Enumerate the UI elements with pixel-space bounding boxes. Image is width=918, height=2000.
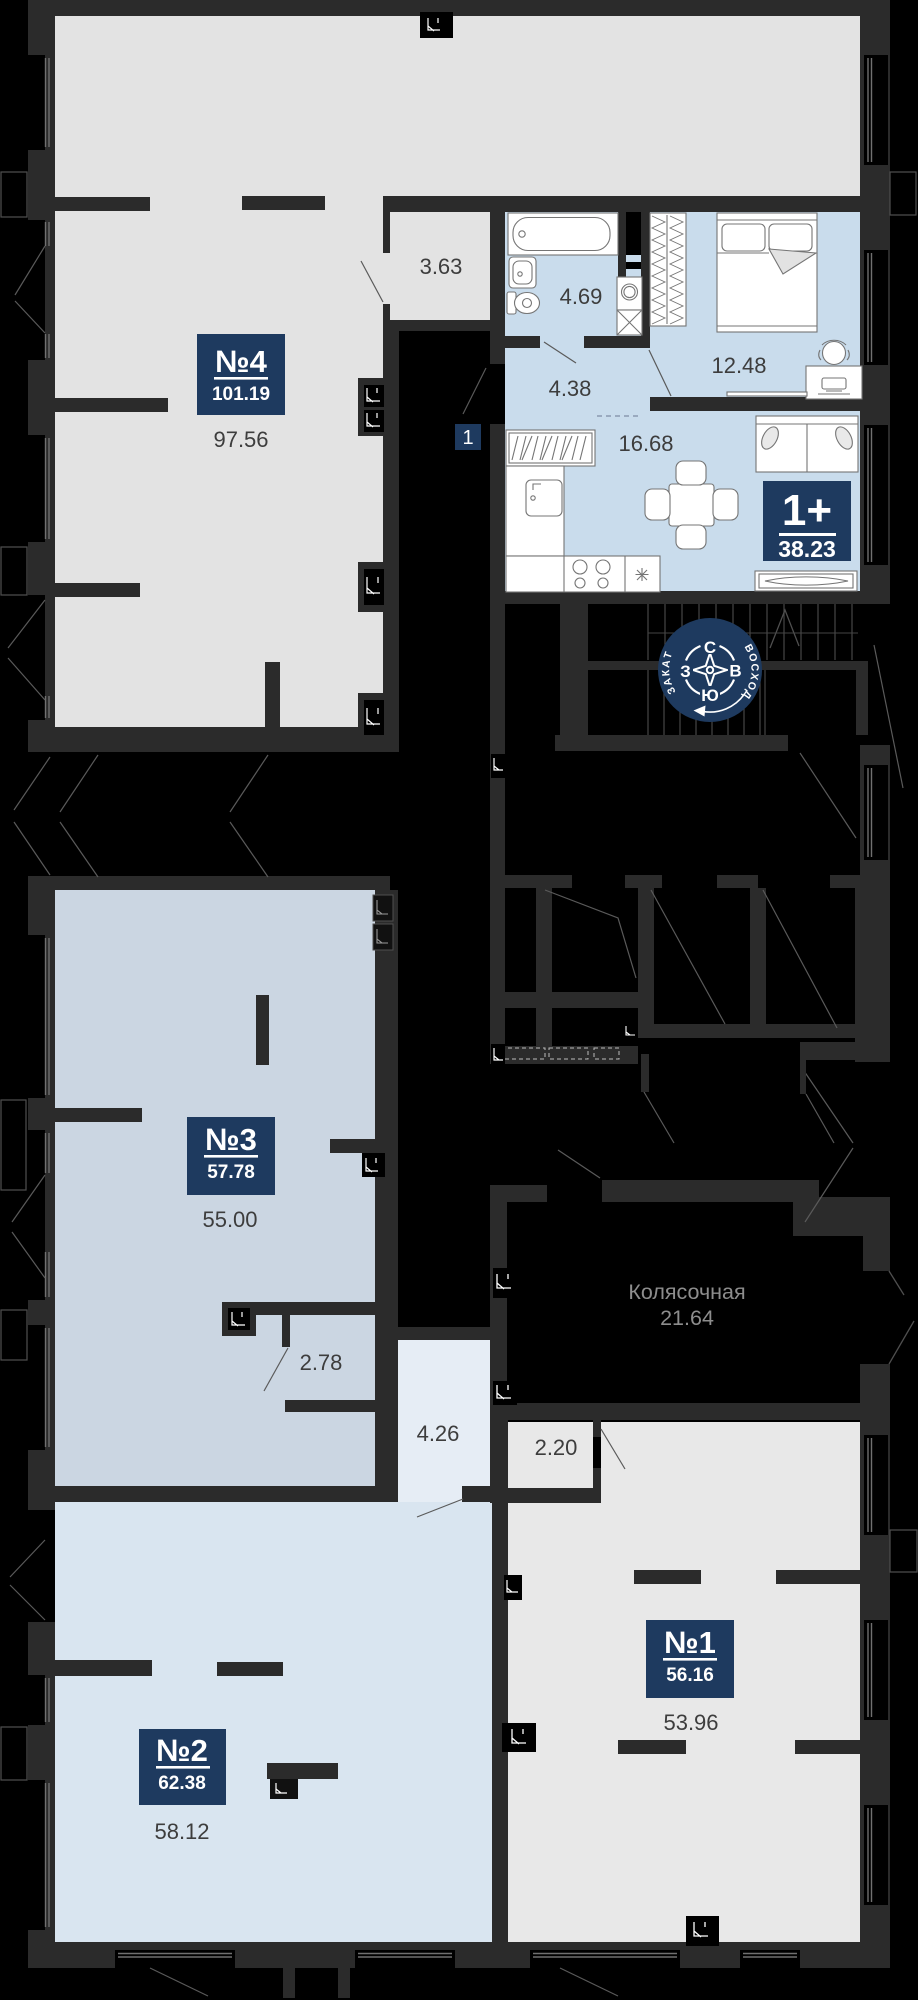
svg-text:53.96: 53.96 (663, 1710, 718, 1735)
svg-text:3.63: 3.63 (420, 254, 463, 279)
svg-text:В: В (729, 662, 741, 681)
svg-text:З: З (680, 662, 691, 681)
svg-text:21.64: 21.64 (660, 1306, 714, 1330)
svg-text:16.68: 16.68 (618, 431, 673, 456)
svg-text:4.38: 4.38 (549, 376, 592, 401)
svg-text:1: 1 (462, 427, 473, 449)
svg-text:№2: №2 (156, 1733, 208, 1768)
svg-text:56.16: 56.16 (666, 1665, 714, 1686)
svg-text:38.23: 38.23 (778, 536, 836, 562)
svg-text:55.00: 55.00 (202, 1207, 257, 1232)
svg-text:С: С (704, 638, 716, 657)
svg-text:62.38: 62.38 (158, 1773, 206, 1794)
svg-text:4.26: 4.26 (417, 1421, 460, 1446)
svg-text:57.78: 57.78 (207, 1162, 255, 1183)
svg-text:Ю: Ю (701, 686, 719, 705)
svg-text:97.56: 97.56 (213, 427, 268, 452)
svg-text:1+: 1+ (782, 486, 832, 535)
svg-text:58.12: 58.12 (154, 1819, 209, 1844)
svg-text:12.48: 12.48 (711, 353, 766, 378)
svg-text:Колясочная: Колясочная (628, 1280, 745, 1304)
svg-text:2.20: 2.20 (535, 1435, 578, 1460)
svg-text:2.78: 2.78 (300, 1350, 343, 1375)
svg-text:№3: №3 (205, 1122, 257, 1157)
svg-text:4.69: 4.69 (560, 284, 603, 309)
svg-text:№1: №1 (664, 1625, 716, 1660)
svg-text:№4: №4 (215, 344, 268, 379)
svg-text:101.19: 101.19 (212, 384, 270, 405)
